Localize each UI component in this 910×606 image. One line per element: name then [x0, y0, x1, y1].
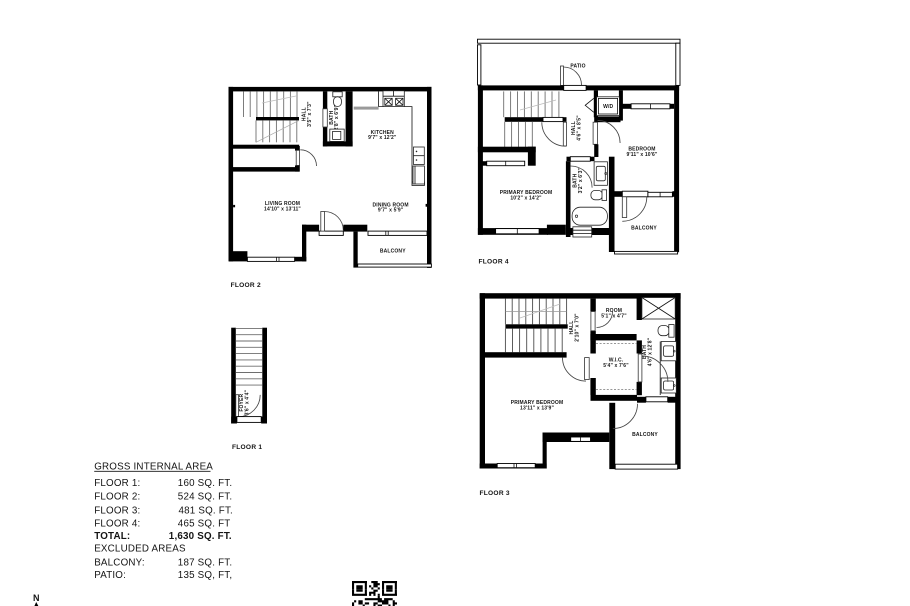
svg-text:3'2" x 6'3": 3'2" x 6'3" [578, 167, 584, 193]
svg-text:3'5" x 7'3": 3'5" x 7'3" [307, 101, 313, 127]
svg-text:3'6" x 4'4": 3'6" x 4'4" [245, 389, 251, 415]
svg-text:TOTAL:: TOTAL: [94, 531, 130, 542]
svg-text:13'11" x 13'9": 13'11" x 13'9" [520, 406, 554, 412]
svg-text:FLOOR 2: FLOOR 2 [231, 282, 261, 289]
svg-text:1,630 SQ. FT.: 1,630 SQ. FT. [169, 531, 232, 542]
svg-text:481 SQ. FT.: 481 SQ. FT. [179, 505, 233, 516]
svg-text:BALCONY: BALCONY [632, 432, 658, 438]
svg-text:465 SQ. FT: 465 SQ. FT [178, 518, 231, 529]
svg-text:9'7" x 5'9": 9'7" x 5'9" [378, 207, 404, 213]
svg-text:135 SQ, FT,: 135 SQ, FT, [178, 570, 232, 581]
svg-text:160 SQ. FT.: 160 SQ. FT. [178, 478, 232, 489]
svg-text:4'6" x 12'8": 4'6" x 12'8" [647, 337, 653, 366]
svg-text:FLOOR 4:: FLOOR 4: [94, 518, 140, 529]
svg-text:524 SQ. FT.: 524 SQ. FT. [178, 492, 232, 503]
svg-text:GROSS INTERNAL AREA: GROSS INTERNAL AREA [94, 461, 213, 472]
svg-text:EXCLUDED AREAS: EXCLUDED AREAS [94, 544, 186, 555]
svg-text:2'10" x 7'0": 2'10" x 7'0" [574, 313, 580, 342]
svg-text:5'4" x 7'6": 5'4" x 7'6" [603, 363, 629, 369]
svg-text:BALCONY: BALCONY [380, 249, 406, 255]
svg-text:FLOOR 2:: FLOOR 2: [94, 492, 140, 503]
svg-text:14'10" x 13'11": 14'10" x 13'11" [264, 206, 301, 212]
svg-text:FLOOR 3: FLOOR 3 [480, 490, 510, 497]
svg-text:BALCONY: BALCONY [631, 226, 657, 232]
svg-text:W/D: W/D [603, 104, 613, 110]
svg-text:9'11" x 10'6": 9'11" x 10'6" [626, 152, 658, 158]
svg-text:FLOOR 3:: FLOOR 3: [94, 505, 140, 516]
svg-text:9'7" x 12'2": 9'7" x 12'2" [368, 135, 397, 141]
svg-text:BALCONY:: BALCONY: [94, 557, 145, 568]
svg-text:2'8" x 6'9": 2'8" x 6'9" [334, 104, 340, 130]
svg-text:5'1" x 4'7": 5'1" x 4'7" [601, 313, 627, 319]
svg-text:FLOOR 1:: FLOOR 1: [94, 478, 140, 489]
svg-text:FLOOR 4: FLOOR 4 [479, 259, 509, 266]
svg-text:FLOOR 1: FLOOR 1 [232, 444, 262, 451]
svg-text:N: N [33, 593, 40, 603]
svg-text:PATIO: PATIO [570, 63, 585, 69]
svg-text:187 SQ. FT.: 187 SQ. FT. [178, 557, 232, 568]
svg-text:10'2" x 14'2": 10'2" x 14'2" [510, 196, 542, 202]
svg-text:4'6" x 8'5": 4'6" x 8'5" [576, 115, 582, 141]
svg-text:PATIO:: PATIO: [94, 570, 126, 581]
